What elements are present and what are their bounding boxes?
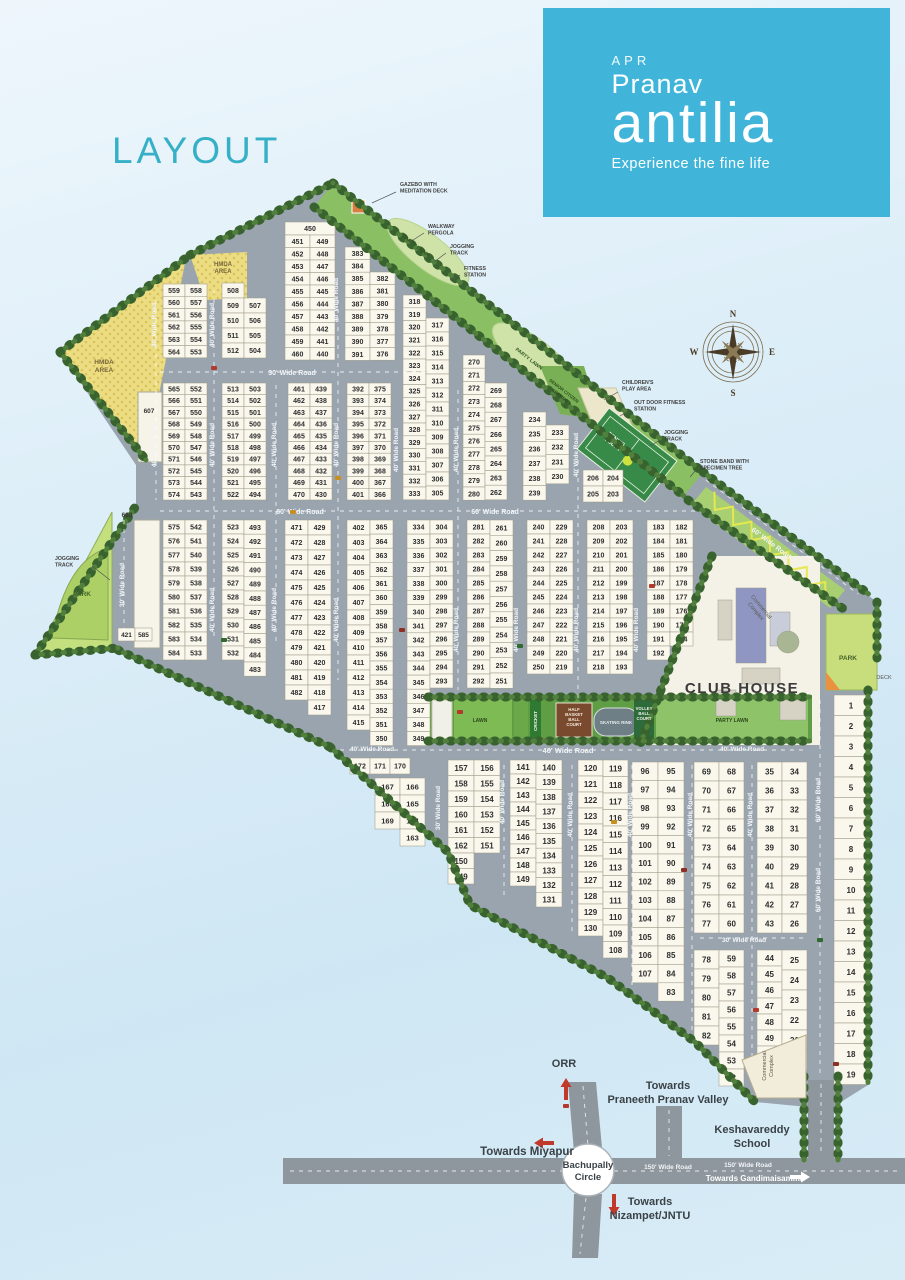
plot-number: 413 <box>353 690 365 697</box>
plot-number: 573 <box>168 480 180 487</box>
plot-number: 507 <box>249 303 261 310</box>
plot-number: 406 <box>353 585 365 592</box>
plot-number: 557 <box>190 300 202 307</box>
plot-number: 522 <box>227 492 239 499</box>
plot-number: 112 <box>609 880 622 889</box>
plot-number: 242 <box>533 553 545 560</box>
plot-number: 161 <box>454 826 468 835</box>
plot-number: 433 <box>315 457 327 464</box>
plot-number: 363 <box>376 553 388 560</box>
trellis <box>432 700 452 740</box>
plot-number: 385 <box>352 276 364 283</box>
plot-number: 314 <box>432 365 444 372</box>
orr-road <box>568 1082 602 1152</box>
plot-number: 153 <box>480 810 494 819</box>
plot-number: 468 <box>293 468 305 475</box>
plot-number: 26 <box>790 920 799 929</box>
plot-number: 410 <box>353 645 365 652</box>
plot-block: 559560561562563564558557556555554553 <box>163 284 207 358</box>
plot-number: 396 <box>352 433 364 440</box>
plot-number: 330 <box>409 453 421 460</box>
deck-label: DECK <box>876 675 892 681</box>
plot-number: 528 <box>227 595 239 602</box>
plot-number: 283 <box>473 553 485 560</box>
road-label: 40' Wide Road <box>633 608 640 652</box>
plot-number: 492 <box>249 539 261 546</box>
plot-number: 329 <box>409 440 421 447</box>
plot-number: 461 <box>293 387 305 394</box>
plot-number: 369 <box>374 457 386 464</box>
plot-number: 317 <box>432 323 444 330</box>
plot-number: 486 <box>249 624 261 631</box>
plot-number: 58 <box>727 972 736 981</box>
plot-number: 476 <box>291 600 303 607</box>
plot-number: 537 <box>190 595 202 602</box>
plot-number: 81 <box>702 1013 711 1022</box>
plot-number: 404 <box>353 555 365 562</box>
road-label: 40' Wide Road <box>271 423 278 467</box>
plot-number: 105 <box>638 933 652 942</box>
plot-number: 289 <box>473 637 485 644</box>
vehicle-dot <box>753 1008 759 1012</box>
plot-number: 312 <box>432 393 444 400</box>
plot-block: 1201211221231241251261271281291301191181… <box>578 760 628 958</box>
plot-number: 183 <box>653 525 665 532</box>
plot-number: 294 <box>436 665 448 672</box>
plot-number: 309 <box>432 435 444 442</box>
plot-number: 234 <box>529 417 541 424</box>
plot-number: 138 <box>542 793 556 802</box>
plot-number: 264 <box>490 461 502 468</box>
plot-number: 189 <box>653 609 665 616</box>
road-label: 60' Wide Road <box>815 778 822 822</box>
plot-number: 218 <box>593 665 605 672</box>
vehicle-dot <box>457 710 463 714</box>
plot-number: 103 <box>638 896 652 905</box>
plot-number: 307 <box>432 463 444 470</box>
plot-number: 581 <box>168 609 180 616</box>
plot-number: 447 <box>317 264 329 271</box>
plot-number: 392 <box>352 387 364 394</box>
plot-number: 542 <box>190 525 202 532</box>
plot-number: 230 <box>552 474 564 481</box>
road-label: 40' Wide Road <box>333 598 340 642</box>
plot-number: 16 <box>847 1009 856 1018</box>
plot-number: 70 <box>702 787 711 796</box>
plot-number: 391 <box>352 352 364 359</box>
plot-number: 394 <box>352 410 364 417</box>
plot-block: 5655665675685695705715725735745525515505… <box>163 383 207 500</box>
road-label: 30' Wide Road <box>435 786 442 830</box>
plot-number: 541 <box>190 539 202 546</box>
plot-number: 415 <box>353 720 365 727</box>
plot-number: 539 <box>190 567 202 574</box>
plot-number: 208 <box>593 525 605 532</box>
plot-number: 216 <box>593 637 605 644</box>
plot-number: 113 <box>609 863 622 872</box>
plot-number: 38 <box>765 825 774 834</box>
plot-number: 608 <box>122 512 133 519</box>
plot-number: 104 <box>638 914 652 923</box>
plot-number: 62 <box>727 882 736 891</box>
plot-number: 511 <box>227 333 238 340</box>
vehicle-dot <box>649 584 655 588</box>
plot-number: 456 <box>292 301 304 308</box>
plot-number: 584 <box>168 651 180 658</box>
plot-number: 73 <box>702 844 711 853</box>
plot-number: 144 <box>516 805 530 814</box>
plot-number: 386 <box>352 289 364 296</box>
compass-w: W <box>690 347 699 357</box>
plot-number: 498 <box>249 445 261 452</box>
plot-number: 499 <box>249 433 261 440</box>
plot-block: 206205204203 <box>583 470 623 502</box>
plot-number: 555 <box>190 325 202 332</box>
plot-number: 560 <box>168 300 180 307</box>
plot-number: 436 <box>315 422 327 429</box>
plot-number: 1 <box>849 701 854 710</box>
road-label: 40' Wide Road <box>543 746 594 755</box>
plot-number: 427 <box>314 555 326 562</box>
plot-number: 157 <box>454 764 468 773</box>
plot-number: 426 <box>314 570 326 577</box>
plot-number: 337 <box>413 567 425 574</box>
plot-number: 407 <box>353 600 365 607</box>
road-label: 40' Wide Road <box>271 588 278 632</box>
plot-number: 272 <box>468 386 480 393</box>
plot-number: 418 <box>314 690 326 697</box>
keshavareddy-school-label: KeshavareddySchool <box>714 1124 790 1150</box>
plot-number: 526 <box>227 567 239 574</box>
plot-number: 209 <box>593 539 605 546</box>
plot-number: 243 <box>533 567 545 574</box>
plot-number: 458 <box>292 326 304 333</box>
plot-number: 160 <box>454 810 468 819</box>
plot-number: 425 <box>314 585 326 592</box>
plot-number: 15 <box>847 988 856 997</box>
plot-number: 287 <box>473 609 485 616</box>
praneeth-road <box>656 1106 682 1160</box>
road-label: 40' Wide Road <box>393 428 400 472</box>
plot-number: 510 <box>227 318 239 325</box>
plot-number: 43 <box>765 920 774 929</box>
plot-number: 454 <box>292 276 304 283</box>
plot-number: 89 <box>667 878 676 887</box>
plot-number: 59 <box>727 955 736 964</box>
plot-block: 2082092102112122132142152162172182032022… <box>587 520 633 674</box>
plot-number: 120 <box>584 764 598 773</box>
gazebo-label: GAZEBO WITHMEDITATION DECK <box>400 182 448 195</box>
plot-number: 460 <box>292 351 304 358</box>
layout-map: TENNISCOURT 5595605615625635645585575565… <box>0 0 905 1280</box>
plot-number: 336 <box>413 553 425 560</box>
plot-number: 240 <box>533 525 545 532</box>
vehicle-dot <box>335 476 341 480</box>
plot-number: 14 <box>847 968 856 977</box>
plot-number: 48 <box>765 1018 774 1027</box>
plot-number: 5 <box>849 783 854 792</box>
plot-number: 171 <box>374 764 386 771</box>
plot-number: 147 <box>516 847 530 856</box>
plot-number: 273 <box>468 399 480 406</box>
park-label: PARK <box>839 655 857 662</box>
plot-number: 86 <box>667 933 676 942</box>
plot-number: 491 <box>249 553 261 560</box>
plot-number: 552 <box>190 387 202 394</box>
plot-number: 509 <box>227 303 239 310</box>
plot-number: 30 <box>790 844 799 853</box>
plot-number: 56 <box>727 1006 736 1015</box>
plot-number: 236 <box>529 446 541 453</box>
south-road <box>572 1194 602 1258</box>
plot-number: 304 <box>436 525 448 532</box>
plot-number: 292 <box>473 679 485 686</box>
plot-number: 158 <box>454 779 468 788</box>
plot-number: 253 <box>496 648 508 655</box>
plot-number: 313 <box>432 379 444 386</box>
plot-number: 279 <box>468 478 480 485</box>
party-lawn-label: PARTY LAWN <box>716 718 749 724</box>
road-label: 30' Wide Road <box>722 937 766 944</box>
plot-number: 223 <box>556 609 568 616</box>
plot-number: 399 <box>352 468 364 475</box>
plot-number: 29 <box>790 863 799 872</box>
plot-number: 288 <box>473 623 485 630</box>
plot-number: 493 <box>249 525 261 532</box>
plot-number: 570 <box>168 445 180 452</box>
plot-block: 5235245255265275285295305315324934924914… <box>222 520 266 676</box>
plot-number: 188 <box>653 595 665 602</box>
plot-block: 697071727374757677686766656463626160 <box>694 762 744 933</box>
road-label: 40' Wide Road <box>720 746 764 753</box>
plot-number: 74 <box>702 863 711 872</box>
road-label: 40' Wide Road <box>350 746 394 753</box>
plot-number: 18 <box>847 1050 856 1059</box>
plot-number: 496 <box>249 468 261 475</box>
road-label: 60' Wide Road <box>815 868 822 912</box>
plot-number: 379 <box>377 314 389 321</box>
plot-number: 228 <box>556 539 568 546</box>
plot-number: 323 <box>409 363 421 370</box>
plot-number: 262 <box>490 490 502 497</box>
plot-number: 361 <box>376 581 388 588</box>
plot-number: 417 <box>314 705 326 712</box>
childrens-play-area-label: CHILDREN'SPLAY AREA <box>622 380 654 393</box>
plot-number: 117 <box>609 797 622 806</box>
plot-number: 582 <box>168 623 180 630</box>
plot-number: 259 <box>496 556 508 563</box>
plot-number: 324 <box>409 376 421 383</box>
plot-number: 506 <box>249 318 261 325</box>
plot-number: 37 <box>765 806 774 815</box>
plot-number: 301 <box>436 567 448 574</box>
plot-number: 184 <box>653 539 665 546</box>
plot-number: 36 <box>765 787 774 796</box>
plot-number: 339 <box>413 595 425 602</box>
park-right <box>826 614 877 690</box>
plot-number: 60 <box>727 920 736 929</box>
plot-number: 297 <box>436 623 448 630</box>
plot-number: 532 <box>227 651 239 658</box>
plot-number: 204 <box>607 476 619 483</box>
club-house-building <box>718 600 732 640</box>
plot-number: 576 <box>168 539 180 546</box>
plot-number: 550 <box>190 410 202 417</box>
plot-number: 504 <box>249 348 261 355</box>
plot-number: 195 <box>616 637 628 644</box>
plot-block: 3183193203213223233243253263273283293303… <box>403 295 449 500</box>
plot-number: 64 <box>727 844 736 853</box>
plot-number: 169 <box>381 816 394 825</box>
vehicle-dot <box>399 628 405 632</box>
plot-number: 478 <box>291 630 303 637</box>
plot-number: 220 <box>556 651 568 658</box>
road-label: 40' Wide Road <box>453 608 460 652</box>
plot-number: 357 <box>376 638 388 645</box>
plot-number: 533 <box>190 651 202 658</box>
plot-number: 517 <box>227 433 239 440</box>
plot-number: 80 <box>702 994 711 1003</box>
road-label: 40' Wide Road <box>453 428 460 472</box>
plot-number: 32 <box>790 806 799 815</box>
plot-number: 83 <box>667 988 676 997</box>
plot-number: 199 <box>616 581 628 588</box>
plot-number: 295 <box>436 651 448 658</box>
plot-number: 185 <box>653 553 665 560</box>
plot-number: 252 <box>496 663 508 670</box>
plot-number: 467 <box>293 457 305 464</box>
plot-number: 46 <box>765 986 774 995</box>
plot-number: 305 <box>432 491 444 498</box>
plot-number: 535 <box>190 623 202 630</box>
plot-number: 34 <box>790 768 799 777</box>
plot-number: 282 <box>473 539 485 546</box>
plot-number: 25 <box>790 956 799 965</box>
plot-number: 368 <box>374 468 386 475</box>
plot-number: 569 <box>168 433 180 440</box>
plot-number: 57 <box>727 989 736 998</box>
plot-number: 485 <box>249 638 261 645</box>
towards-praneeth-label: TowardsPraneeth Pranav Valley <box>607 1080 729 1106</box>
plot-number: 267 <box>490 417 502 424</box>
plot-number: 165 <box>406 799 419 808</box>
plot-number: 39 <box>765 844 774 853</box>
plot-number: 180 <box>676 553 688 560</box>
plot-number: 332 <box>409 478 421 485</box>
plot-number: 520 <box>227 468 239 475</box>
plot-number: 546 <box>190 457 202 464</box>
plot-number: 118 <box>609 781 622 790</box>
plot-number: 6 <box>849 804 854 813</box>
lawn-label: LAWN <box>473 718 488 724</box>
plot-number: 31 <box>790 825 799 834</box>
plot-number: 479 <box>291 645 303 652</box>
road-label: 40' Wide Road <box>209 423 216 467</box>
plot-number: 251 <box>496 678 508 685</box>
plot-number: 376 <box>377 352 389 359</box>
plot-number: 356 <box>376 652 388 659</box>
plot-number: 577 <box>168 553 180 560</box>
plot-block: 5755765775785795805815825835845425415405… <box>163 520 207 660</box>
plot-number: 310 <box>432 421 444 428</box>
plot-number: 345 <box>413 680 425 687</box>
plot-number: 536 <box>190 609 202 616</box>
plot-number: 12 <box>847 927 856 936</box>
skating-rink-label: SKATING RINK <box>600 720 633 725</box>
plot-number: 545 <box>190 468 202 475</box>
plot-number: 190 <box>653 623 665 630</box>
plot-number: 96 <box>641 767 650 776</box>
vehicle-dot <box>563 1104 569 1108</box>
vehicle-dot <box>611 820 617 824</box>
plot-number: 249 <box>533 651 545 658</box>
cricket-label: CRICKET <box>533 711 538 731</box>
plot-number: 178 <box>676 581 688 588</box>
plot-number: 353 <box>376 694 388 701</box>
plot-number: 8 <box>849 845 854 854</box>
plot-number: 450 <box>304 226 316 233</box>
plot-number: 95 <box>667 767 676 776</box>
plot-number: 244 <box>533 581 545 588</box>
plot-number: 373 <box>374 410 386 417</box>
plot-number: 311 <box>432 407 443 414</box>
road-label: 150' Wide Road <box>644 1164 692 1171</box>
plot-number: 146 <box>516 833 530 842</box>
vehicle-dot <box>290 510 296 514</box>
plot-number: 395 <box>352 422 364 429</box>
plot-number: 583 <box>168 637 180 644</box>
plot-block: 4714724734744754764774784794804814824294… <box>285 520 331 715</box>
plot-number: 349 <box>413 736 425 743</box>
plot-number: 61 <box>727 901 736 910</box>
plot-number: 286 <box>473 595 485 602</box>
plot-number: 382 <box>377 276 389 283</box>
plot-number: 68 <box>727 768 736 777</box>
plot-number: 53 <box>727 1057 736 1066</box>
plot-number: 326 <box>409 402 421 409</box>
plot-number: 298 <box>436 609 448 616</box>
plot-number: 152 <box>480 826 494 835</box>
plot-number: 470 <box>293 492 305 499</box>
road-label: 60' Wide Road <box>276 509 324 516</box>
plot-number: 494 <box>249 492 261 499</box>
plot-number: 203 <box>607 492 619 499</box>
plot-number: 78 <box>702 956 711 965</box>
plot-number: 515 <box>227 410 239 417</box>
plot-number: 141 <box>516 763 530 772</box>
plot-number: 76 <box>702 901 711 910</box>
plot-number: 290 <box>473 651 485 658</box>
towards-gandimaisamma-label: Towards Gandimaisamma <box>706 1174 805 1183</box>
jogging-track-label: JOGGINGTRACK <box>55 556 79 569</box>
plot-number: 400 <box>352 480 364 487</box>
plot-number: 525 <box>227 553 239 560</box>
plot-number: 222 <box>556 623 568 630</box>
plot-number: 544 <box>190 480 202 487</box>
vehicle-dot <box>833 1062 839 1066</box>
plot-number: 145 <box>516 819 530 828</box>
plot-number: 126 <box>584 860 598 869</box>
plot-number: 548 <box>190 433 202 440</box>
plot-number: 421 <box>314 645 326 652</box>
leader-line <box>372 192 396 203</box>
plot-number: 568 <box>168 422 180 429</box>
plot-number: 543 <box>190 492 202 499</box>
plot-number: 428 <box>314 540 326 547</box>
plot-number: 238 <box>529 476 541 483</box>
plot-number: 278 <box>468 465 480 472</box>
plot-number: 90 <box>667 859 676 868</box>
